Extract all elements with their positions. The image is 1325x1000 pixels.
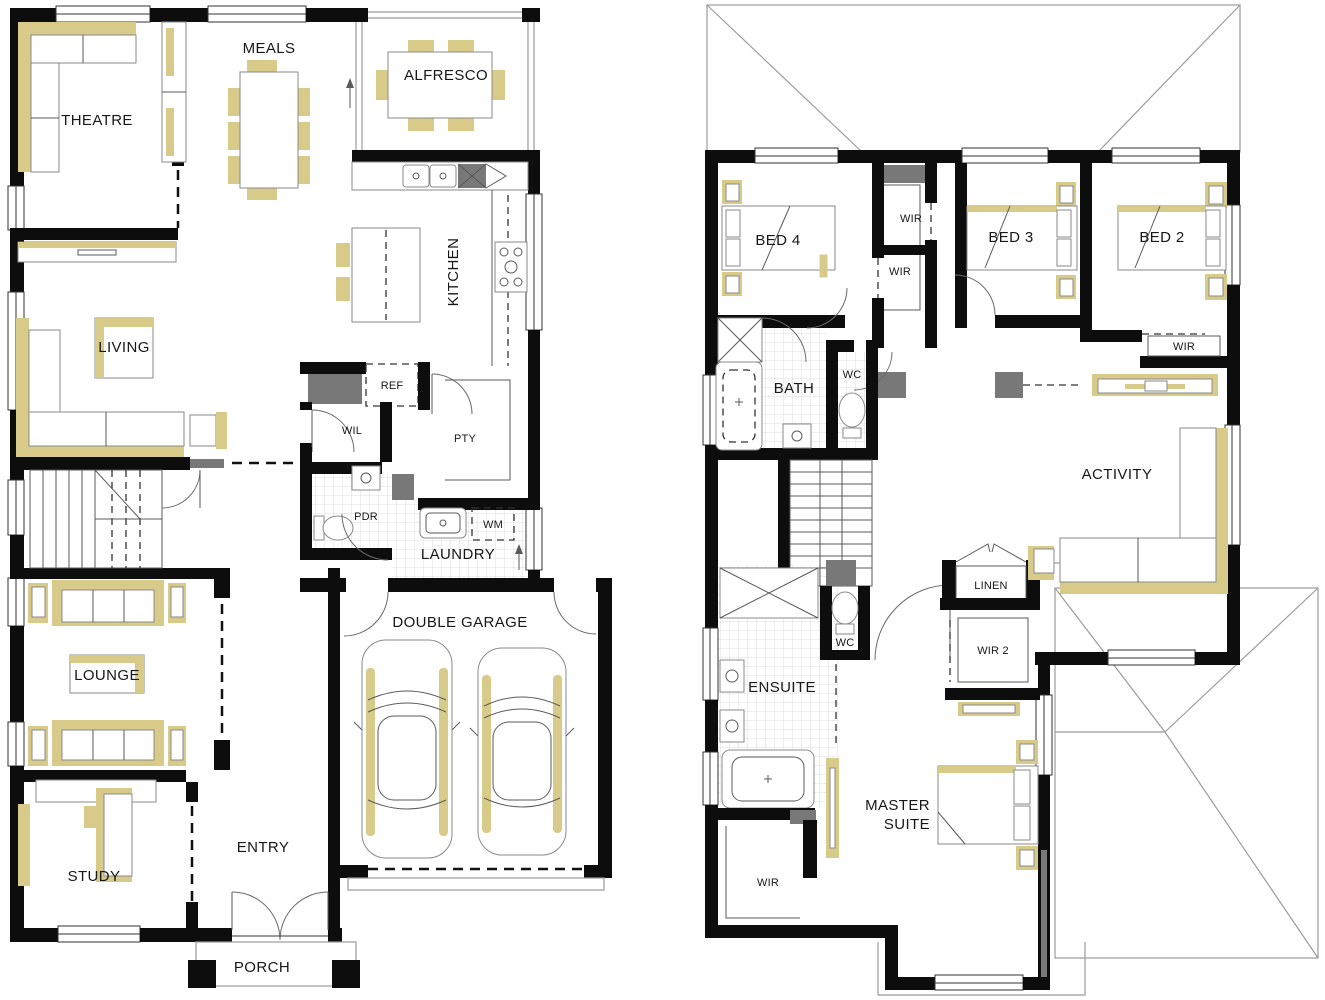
alfresco-step-arrow	[346, 78, 354, 108]
kitchen-island	[336, 228, 420, 322]
lounge-sofa-top	[28, 580, 186, 626]
room-label-linen: LINEN	[974, 580, 1007, 592]
room-label-master-1: MASTER	[865, 797, 930, 814]
room-label-entry: ENTRY	[237, 839, 290, 856]
room-label-meals: MEALS	[243, 40, 296, 57]
cabinet-niche	[308, 374, 362, 404]
room-label-wir-top: WIR	[900, 213, 922, 225]
room-label-activity: ACTIVITY	[1082, 466, 1153, 483]
wir2-structure	[945, 618, 1040, 700]
activity-tv-console	[1092, 374, 1218, 396]
room-label-pty: PTY	[454, 433, 476, 445]
wm-label: WM	[483, 519, 503, 531]
floor-plan-page: REF WM	[0, 0, 1325, 1000]
dressing-mirror	[826, 758, 839, 858]
alfresco-table	[376, 40, 505, 131]
room-label-ensuite: ENSUITE	[748, 679, 816, 696]
room-label-master-2: SUITE	[884, 816, 930, 833]
ensuite-shower	[720, 568, 818, 618]
ground-floor-plan: REF WM	[8, 6, 612, 988]
master-bed	[938, 740, 1038, 870]
first-floor-plan: BED 4 WIR WIR BED 3 BED 2 WIR BATH WC AC…	[703, 5, 1318, 995]
pdr-basin	[352, 466, 380, 490]
room-label-wil: WIL	[342, 425, 362, 437]
car-1	[354, 640, 460, 858]
room-label-theatre: THEATRE	[61, 112, 133, 129]
laundry-trough	[420, 508, 466, 538]
car-2	[470, 648, 574, 855]
cooktop	[495, 242, 527, 292]
floor-plan-graphic: REF WM	[0, 0, 1325, 1000]
room-label-porch: PORCH	[234, 959, 290, 976]
room-label-kitchen: KITCHEN	[445, 238, 462, 307]
wc1-toilet	[839, 393, 865, 438]
front-door	[232, 892, 328, 940]
ensuite-basin-1	[720, 660, 744, 692]
bath-shower	[718, 318, 762, 362]
theatre-cabinet	[162, 22, 186, 162]
master-console	[958, 702, 1020, 716]
room-label-bed2: BED 2	[1139, 229, 1184, 246]
room-label-study: STUDY	[68, 868, 121, 885]
room-label-bath: BATH	[774, 380, 815, 397]
wc2-toilet	[832, 592, 858, 634]
roof-bottom-right	[1050, 563, 1318, 958]
bath-basin	[783, 424, 811, 448]
tv-unit	[190, 459, 224, 468]
dining-table	[228, 60, 310, 200]
room-label-wir-mid: WIR	[889, 266, 911, 278]
kitchen-sink	[403, 165, 456, 187]
ref-label: REF	[381, 380, 404, 392]
room-label-wir-bed2: WIR	[1173, 341, 1195, 353]
room-label-alfresco: ALFRESCO	[404, 67, 488, 84]
sliding-door-track	[1041, 850, 1047, 978]
room-label-lounge: LOUNGE	[74, 667, 140, 684]
stairs-ground	[30, 470, 162, 568]
room-label-bed3: BED 3	[988, 229, 1033, 246]
room-label-living: LIVING	[98, 339, 150, 356]
room-label-garage: DOUBLE GARAGE	[392, 614, 527, 631]
room-label-pdr: PDR	[354, 511, 378, 523]
living-sideboard	[18, 242, 176, 262]
bathtub	[716, 362, 762, 450]
ensuite-bathtub	[722, 750, 814, 808]
room-label-wc-ens: WC	[836, 637, 855, 649]
room-label-bed4: BED 4	[755, 232, 800, 249]
room-label-wir-master: WIR	[757, 877, 779, 889]
linen-closet	[942, 544, 1040, 604]
wir-shelving	[726, 826, 800, 918]
ensuite-basin-2	[720, 710, 744, 742]
room-label-wir2: WIR 2	[977, 645, 1009, 657]
lounge-sofa-bottom	[28, 720, 186, 766]
room-label-wc-bath: WC	[843, 369, 862, 381]
theatre-sofa	[18, 22, 136, 172]
fridge-space: REF	[366, 364, 418, 406]
room-label-laundry: LAUNDRY	[421, 546, 495, 563]
activity-sofa	[1028, 428, 1228, 594]
roof-top	[707, 5, 1240, 152]
